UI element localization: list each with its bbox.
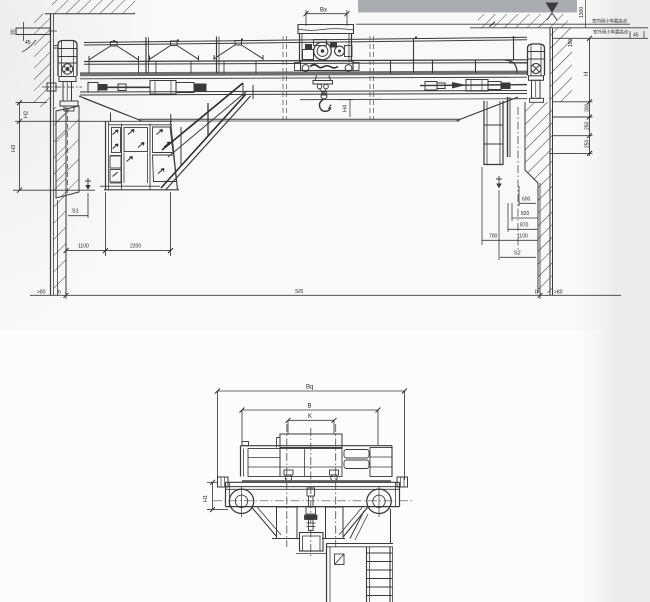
svg-text:>80: >80 — [554, 290, 563, 296]
svg-text:S2: S2 — [514, 251, 521, 257]
svg-text:150: 150 — [568, 38, 574, 47]
svg-text:S1: S1 — [72, 209, 79, 215]
svg-text:45: 45 — [633, 33, 639, 39]
svg-text:H1: H1 — [203, 495, 209, 502]
svg-text:45: 45 — [25, 40, 31, 46]
svg-text:250: 250 — [585, 121, 591, 130]
svg-text:S/5: S/5 — [295, 289, 303, 295]
svg-text:B: B — [308, 404, 312, 410]
svg-text:>80: >80 — [37, 290, 46, 296]
svg-text:1300: 1300 — [579, 7, 585, 18]
svg-text:室内用小车最高点: 室内用小车最高点 — [592, 17, 628, 24]
svg-text:700: 700 — [489, 234, 498, 240]
svg-text:b: b — [58, 290, 61, 296]
svg-text:H4: H4 — [343, 105, 349, 112]
svg-text:870: 870 — [520, 223, 529, 229]
svg-text:室外用小车最高点: 室外用小车最高点 — [593, 28, 629, 35]
svg-text:300: 300 — [585, 103, 591, 112]
svg-text:1100: 1100 — [78, 244, 89, 250]
svg-text:Bx: Bx — [320, 8, 327, 14]
svg-text:K: K — [308, 414, 312, 420]
svg-text:250: 250 — [585, 139, 591, 148]
svg-text:H2: H2 — [24, 111, 30, 118]
svg-text:H: H — [584, 72, 590, 76]
svg-text:b: b — [535, 290, 538, 296]
svg-text:600: 600 — [522, 197, 531, 203]
svg-text:Bq: Bq — [306, 385, 313, 391]
svg-text:H3: H3 — [11, 145, 17, 152]
svg-text:30: 30 — [11, 29, 17, 35]
svg-text:1100: 1100 — [517, 234, 528, 240]
svg-text:2200: 2200 — [130, 244, 141, 250]
svg-text:820: 820 — [521, 211, 530, 217]
